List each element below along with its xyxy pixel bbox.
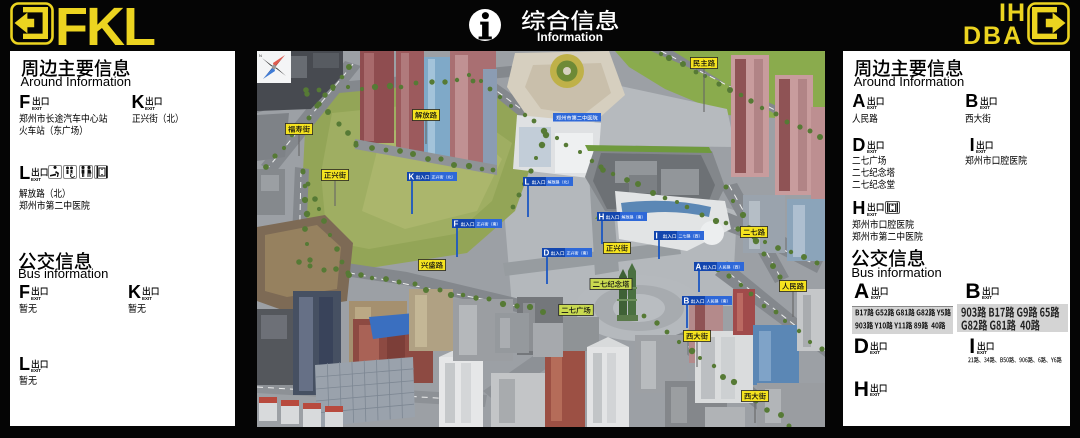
svg-text:F: F [454, 219, 459, 228]
svg-text:L: L [525, 177, 530, 186]
svg-text:A: A [696, 262, 702, 271]
svg-text:D: D [544, 248, 550, 257]
svg-text:I: I [656, 231, 658, 240]
svg-text:H: H [599, 212, 605, 221]
svg-text:N: N [259, 53, 262, 58]
svg-text:K: K [409, 172, 415, 181]
svg-text:B: B [684, 296, 690, 305]
